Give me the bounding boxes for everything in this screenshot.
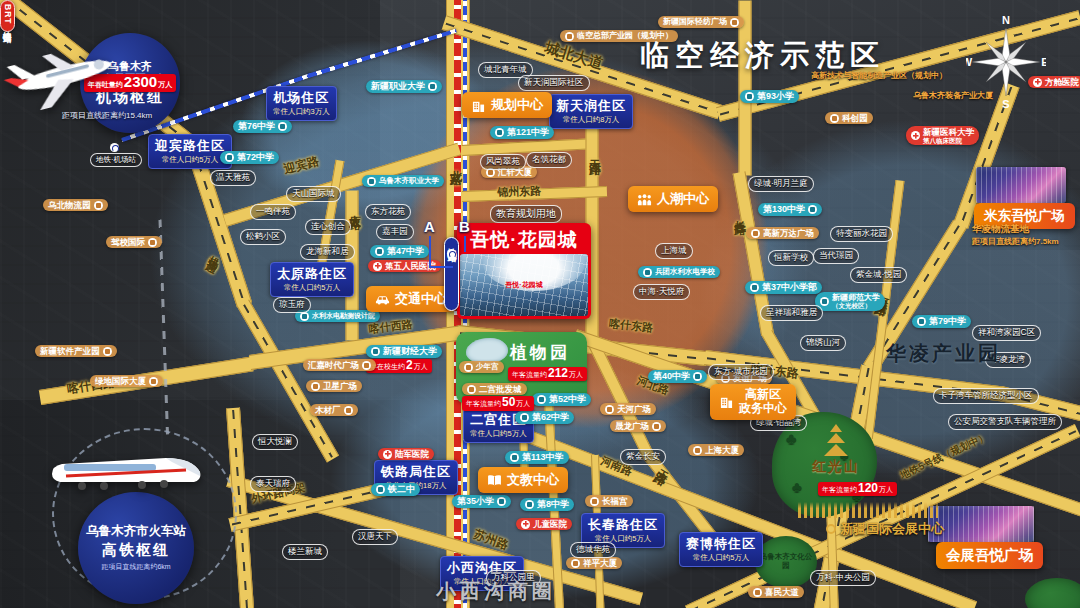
poi-badge-wrap: 晟龙广场 (610, 420, 666, 432)
poi-badge-wrap: 木材厂 (310, 404, 358, 416)
estate-label: 嘉丰园 (376, 224, 414, 240)
school-badge-label: 第130中学 (763, 205, 805, 215)
school-badge-wrap: 水利水电勘测设计院 (295, 310, 380, 322)
school-badge-label: 第8中学 (537, 500, 569, 510)
pdot-icon (830, 114, 839, 123)
poi-badge-wrap: 新疆软件产业园 (35, 345, 117, 357)
center-label: 人潮中心 (628, 186, 718, 212)
railway-hub: 乌鲁木齐市火车站 高铁枢纽 距项目直线距离约6km (78, 492, 194, 604)
school-badge-label: 第93小学 (757, 92, 794, 102)
estate-label: 楼兰新城 (282, 544, 328, 560)
poi-badge-wrap: 喜民大道 (748, 586, 804, 598)
car-icon (375, 293, 390, 306)
poi-badge: 汇嘉时代广场 (303, 359, 376, 371)
estate-label: 温天雅苑 (210, 170, 256, 186)
poi-badge: 绿地国际大厦 (90, 375, 163, 387)
school-badge-wrap: 第40中学 (648, 370, 707, 383)
school-badge: 新疆职业大学 (366, 80, 442, 93)
district-population: 常住人口约8万人 (556, 115, 626, 125)
road-name-label: 锦州东路 (497, 183, 541, 200)
school-badge-wrap: 第47中学 (370, 245, 429, 258)
estate-label: 上海城 (655, 243, 693, 259)
expo-icon (826, 524, 836, 534)
airport-distance: 距项目直线距离约15.4km (62, 110, 152, 121)
sdot-icon (643, 268, 652, 277)
school-badge-text: 第8中学 (537, 500, 569, 510)
project-title: 吾悦·花园城 (457, 223, 591, 253)
district-name: 铁路局住区 (381, 463, 451, 481)
school-badge-text: 新疆职业大学 (371, 82, 425, 92)
poi-badge-label: 乌北物流园 (48, 201, 91, 210)
poi-badge-label: 新疆软件产业园 (40, 347, 100, 356)
poi-badge: 高新万达广场 (746, 227, 819, 239)
pdot-icon (148, 238, 157, 247)
train-icon (46, 436, 206, 496)
school-badge-text: 第52中学 (549, 395, 586, 405)
district-label: 赛博特住区常住人口约5万人 (679, 532, 763, 567)
zone-label-hualing: 华凌产业园 (886, 340, 1001, 367)
metro-station-botanical: 地铁植物园站 (444, 237, 459, 311)
poi-badge-label: 绿地国际大厦 (95, 377, 146, 386)
school-badge-text: 兵团水利水电学校 (655, 268, 715, 276)
school-badge-text: 铁二中 (388, 485, 415, 495)
estate-label: 卡子湾车管所经济型小区 (933, 388, 1039, 404)
sdot-icon (375, 247, 384, 256)
estate-label: 绿城·明月兰庭 (748, 176, 814, 192)
estate-label: 中海·天悦府 (633, 284, 690, 300)
hospital-badge-text: 儿童医院 (533, 520, 567, 529)
poi-badge: 驾校国际 (106, 236, 162, 248)
school-badge-label: 第121中学 (507, 128, 549, 138)
sdot-icon (820, 297, 829, 306)
road-name-label: 喀什东路 (608, 316, 653, 336)
poi-badge-text: 木材厂 (315, 406, 341, 415)
badge-text: 50 (502, 396, 515, 409)
district-name: 太原路住区 (277, 265, 347, 283)
airport-metro-icon (110, 143, 119, 152)
pdot-icon (94, 201, 103, 210)
project-logo-text: 吾悦·花园城 (460, 280, 588, 290)
school-badge-label: 第35小学 (457, 497, 494, 507)
school-badge: 新疆财经大学 (366, 345, 442, 358)
badge-text: 2 (406, 359, 413, 372)
school-badge: 第121中学 (490, 126, 554, 139)
school-badge-label: 第52中学 (549, 395, 586, 405)
estate-label: 天山国际城 (286, 186, 341, 202)
school-badge-wrap: 第130中学 (758, 203, 822, 216)
airport-metro-label: 地铁·机场站 (90, 153, 142, 167)
estate-label: 特变丽水花园 (830, 226, 893, 242)
district-name: 新天润住区 (556, 97, 626, 115)
poi-badge-label: 科创园 (842, 114, 868, 123)
estate-label: 龙海新和居 (300, 244, 355, 260)
poi-badge-text: 汇嘉时代广场 (308, 361, 359, 370)
school-badge-label: 新疆师范大学 (832, 294, 880, 303)
school-badge-text: 第130中学 (763, 205, 805, 215)
center-text: 交通中心 (395, 290, 447, 308)
school-badge-text: 第121中学 (507, 128, 549, 138)
road-name-label: 迎宾路 (282, 153, 321, 179)
estate-label: 德城华苑 (570, 542, 616, 558)
poi-badge-text: 乌北物流园 (48, 201, 91, 210)
school-badge: 第130中学 (758, 203, 822, 216)
school-badge: 第62中学 (515, 411, 574, 424)
poi-badge-label: 上海大厦 (705, 446, 739, 455)
school-badge-wrap: 第62中学 (515, 411, 574, 424)
compass-n: N (1002, 14, 1010, 26)
poi-badge-text: 卫星广场 (323, 382, 357, 391)
project-rendering: 吾悦·花园城 (460, 254, 588, 316)
center-line: 高新区 (739, 388, 787, 402)
school-badge-wrap: 新疆师范大学（文光校区） (815, 292, 885, 311)
estate-label: 恒大悦澜 (252, 434, 298, 450)
district-label: 机场住区常住人口约3万人 (266, 86, 337, 121)
poi-badge-text: 天河广场 (617, 405, 651, 414)
boundary-dashed-line (159, 219, 170, 434)
school-badge-wrap: 第8中学 (520, 498, 574, 511)
sdot-icon (520, 413, 529, 422)
hdot-icon (911, 131, 920, 140)
poi-badge-text: 上海大厦 (705, 446, 739, 455)
stat-badge: 年客流量约50万人 (462, 396, 534, 410)
pdot-icon (751, 229, 760, 238)
expo-mall-label: 会展吾悦广场 (936, 542, 1043, 569)
project-box: 吾悦·花园城 吾悦·花园城 (457, 223, 591, 319)
compass-s: S (1002, 98, 1009, 110)
school-badge: 第35小学 (452, 495, 511, 508)
school-badge: 兵团水利水电学校 (638, 266, 720, 278)
poi-badge-wrap: 二宫批发城年客流量约50万人 (462, 383, 534, 411)
district-population: 常住人口约3万人 (273, 107, 330, 117)
district-label: 新天润住区常住人口约8万人 (549, 94, 633, 129)
road-segment (462, 138, 592, 156)
estate-label: 连心创合 (305, 219, 351, 235)
school-badge-text: 第113中学 (522, 453, 564, 463)
compass-rose: N S W E (966, 10, 1046, 112)
hospital-badge-wrap: 儿童医院 (516, 518, 572, 530)
school-badge-text: 第76中学 (238, 122, 275, 132)
pdot-icon (103, 347, 112, 356)
tree-icon (786, 430, 797, 448)
building-icon (471, 99, 486, 112)
poi-badge-text: 绿地国际大厦 (95, 377, 146, 386)
estate-label: 公安局交警支队车辆管理所 (948, 414, 1062, 430)
sdot-icon (537, 395, 546, 404)
school-badge: 第52中学 (532, 393, 591, 406)
school-badge-wrap: 兵团水利水电学校 (638, 266, 720, 278)
school-badge-wrap: 第52中学 (532, 393, 591, 406)
hospital-badge-text: 陆军医院 (395, 450, 429, 459)
estate-label: 新天润国际社区 (518, 75, 590, 91)
school-badge-label: 乌鲁木齐职业大学 (379, 177, 439, 185)
pdot-icon (605, 405, 614, 414)
sdot-icon (278, 122, 287, 131)
estate-label: 恒新学校 (768, 250, 814, 266)
school-badge: 第40中学 (648, 370, 707, 383)
metro-roundel-icon (447, 249, 456, 258)
sdot-icon (367, 177, 376, 186)
school-badge: 第47中学 (370, 245, 429, 258)
poi-badge: 喜民大道 (748, 586, 804, 598)
estate-label: 名筑花都 (526, 152, 572, 168)
exit-b-line (464, 236, 466, 252)
estate-label: 紫金长安 (620, 449, 666, 465)
poi-badge-wrap: 少年宫 (459, 361, 504, 373)
sdot-icon (495, 128, 504, 137)
badge-text: 万人 (516, 399, 530, 409)
school-badge-wrap: 第72中学 (220, 151, 279, 164)
sdot-icon (693, 372, 702, 381)
poi-badge-text: 驾校国际 (111, 238, 145, 247)
estate-label: 一鸣伴苑 (250, 204, 296, 220)
expo-center-label: 新疆国际会展中心 (826, 520, 944, 538)
district-label: 太原路住区常住人口约5万人 (270, 262, 354, 297)
badge-text: 万人 (414, 362, 428, 372)
hospital-badge-text: 新疆医科大学第八临床医院 (923, 128, 974, 144)
school-badge: 乌鲁木齐职业大学 (362, 175, 444, 187)
poi-badge: 卫星广场 (306, 380, 362, 392)
estate-label: 风尚翠苑 (480, 154, 526, 170)
sdot-icon (371, 347, 380, 356)
poi-badge-text: 晟龙广场 (615, 422, 649, 431)
hospital-badge-wrap: 陆军医院 (378, 448, 434, 460)
hdot-icon (521, 520, 530, 529)
poi-badge-text: 高新万达广场 (763, 229, 814, 238)
school-badge-text: 新疆财经大学 (383, 347, 437, 357)
district-population: 常住人口约5万人 (277, 283, 347, 293)
poi-badge-label: 少年宫 (476, 363, 499, 371)
school-badge-sub: （文光校区） (832, 302, 880, 309)
school-badge: 水利水电勘测设计院 (295, 310, 380, 322)
hospital-badge-label: 新疆医科大学 (923, 128, 974, 137)
school-badge-wrap: 第35小学 (452, 495, 511, 508)
poi-badge-label: 天河广场 (617, 405, 651, 414)
road-name-label: 天津路 (586, 150, 603, 156)
school-badge-text: 第40中学 (653, 372, 690, 382)
poi-badge-label: 二宫批发城 (479, 385, 522, 394)
school-badge: 第72中学 (220, 151, 279, 164)
road-name-label: 北京路 (447, 160, 464, 166)
school-badge: 第93小学 (740, 90, 799, 103)
estate-label: 万科·中央公园 (810, 570, 876, 586)
poi-badge-label: 卫星广场 (323, 382, 357, 391)
pdot-icon (464, 363, 473, 372)
school-badge-text: 乌鲁木齐职业大学 (379, 177, 439, 185)
pdot-icon (652, 422, 661, 431)
school-badge-wrap: 第37中小学部 (745, 281, 822, 294)
school-badge-label: 第72中学 (237, 153, 274, 163)
hospital-badge-label: 方舱医院 (1045, 78, 1079, 87)
district-name: 迎宾路住区 (155, 137, 225, 155)
pdot-icon (149, 377, 158, 386)
school-badge-text: 第35小学 (457, 497, 494, 507)
center-text: 人潮中心 (657, 190, 709, 208)
school-badge-label: 铁二中 (388, 485, 415, 495)
school-badge-wrap: 新疆职业大学 (366, 80, 442, 93)
school-badge: 第79中学 (912, 315, 971, 328)
hospital-badge-wrap: 新疆医科大学第八临床医院 (906, 126, 979, 145)
badge-text: 年客流量约 (466, 399, 501, 409)
poi-badge-wrap: 祥平大厦 (566, 557, 622, 569)
pdot-icon (590, 497, 599, 506)
poi-badge-wrap: 长福宫 (585, 495, 633, 507)
pdot-icon (571, 559, 580, 568)
school-badge-text: 第37中小学部 (762, 283, 817, 293)
people-icon (637, 193, 652, 206)
school-badge-label: 水利水电勘测设计院 (312, 312, 375, 320)
zone-label-airspace: 临空经济示范区 (640, 36, 885, 76)
poi-badge-label: 驾校国际 (111, 238, 145, 247)
school-badge-wrap: 乌鲁木齐职业大学 (362, 175, 444, 187)
sdot-icon (745, 92, 754, 101)
district-name: 赛博特住区 (686, 535, 756, 553)
pdot-icon (311, 382, 320, 391)
school-badge-label: 第37中小学部 (762, 283, 817, 293)
center-text: 文教中心 (507, 471, 559, 489)
exit-a-line (429, 266, 453, 268)
hospital-badge: 儿童医院 (516, 518, 572, 530)
school-badge-text: 第47中学 (387, 247, 424, 257)
poi-badge: 科创园 (825, 112, 873, 124)
poi-badge-label: 长福宫 (602, 497, 628, 506)
poi-badge-text: 科创园 (842, 114, 868, 123)
estate-label: 东方·城市花园 (708, 364, 774, 380)
school-badge-text: 水利水电勘测设计院 (312, 312, 375, 320)
hospital-badge-sub: 第八临床医院 (923, 137, 974, 144)
poi-badge: 晟龙广场 (610, 420, 666, 432)
metro-exit-a: A (424, 218, 435, 235)
poi-badge-wrap: 汇嘉时代广场 (303, 359, 376, 371)
poi-badge: 少年宫 (459, 361, 504, 373)
land-use-label: 教育规划用地 (490, 205, 562, 223)
district-name: 机场住区 (273, 89, 330, 107)
pdot-icon (344, 406, 353, 415)
poi-badge: 二宫批发城 (462, 383, 527, 395)
school-badge-label: 第79中学 (929, 317, 966, 327)
sdot-icon (376, 485, 385, 494)
center-label: 高新区政务中心 (710, 384, 796, 420)
estate-label: 祥和湾家园C区 (972, 325, 1041, 341)
poi-badge-label: 新疆国际轻纺广场 (663, 18, 727, 27)
poi-badge-text: 祥平大厦 (583, 559, 617, 568)
poi-badge-wrap: 新疆国际轻纺广场 (658, 16, 744, 28)
compass-w: W (966, 56, 973, 68)
poi-badge-text: 少年宫 (476, 363, 499, 371)
district-population: 常住人口约5万人 (155, 155, 225, 165)
center-label: 规划中心 (462, 92, 552, 118)
road-name-label: 太原路 (346, 205, 363, 211)
hospital-badge: 新疆医科大学第八临床医院 (906, 126, 979, 145)
poi-badge-label: 祥平大厦 (583, 559, 617, 568)
pdot-icon (730, 18, 739, 27)
school-badge-label: 第40中学 (653, 372, 690, 382)
poi-badge-wrap: 科创园 (825, 112, 873, 124)
center-line: 政务中心 (739, 402, 787, 416)
poi-badge: 木材厂 (310, 404, 358, 416)
sdot-icon (510, 453, 519, 462)
estate-label: 汉唐天下 (352, 529, 398, 545)
hdot-icon (373, 262, 382, 271)
school-badge-wrap: 第76中学 (233, 120, 292, 133)
district-name: 长春路住区 (588, 516, 658, 534)
school-badge-label: 第62中学 (532, 413, 569, 423)
metro-line-dashed (307, 29, 456, 78)
poi-badge-text: 喜民大道 (765, 588, 799, 597)
expo-center-skyline (798, 502, 938, 518)
poi-badge: 新疆国际轻纺广场 (658, 16, 744, 28)
poi-badge-wrap: 绿地国际大厦 (90, 375, 163, 387)
visitor-badge: 年客流量约212万人 (508, 367, 587, 381)
center-label: 文教中心 (478, 467, 568, 493)
poi-badge-wrap: 天河广场 (600, 403, 656, 415)
school-badge-label: 第76中学 (238, 122, 275, 132)
school-badge-wrap: 第113中学 (505, 451, 569, 464)
poi-badge: 祥平大厦 (566, 557, 622, 569)
metro-exit-b: B (459, 218, 470, 235)
estate-label: 锦绣山河 (800, 335, 846, 351)
poi-badge-text: 新疆国际轻纺广场 (663, 18, 727, 27)
school-badge-text: 新疆师范大学（文光校区） (832, 294, 880, 310)
school-badge: 第8中学 (520, 498, 574, 511)
school-badge: 第76中学 (233, 120, 292, 133)
sdot-icon (225, 153, 234, 162)
center-text: 规划中心 (491, 96, 543, 114)
book-icon (487, 474, 502, 487)
hospital-badge-label: 儿童医院 (533, 520, 567, 529)
poi-badge-wrap: 乌北物流园 (43, 199, 108, 211)
poi-badge: 天河广场 (600, 403, 656, 415)
poi-badge-text: 新疆软件产业园 (40, 347, 100, 356)
park-shape (1025, 578, 1080, 608)
poi-badge: 长福宫 (585, 495, 633, 507)
pdot-icon (467, 385, 476, 394)
school-badge: 第113中学 (505, 451, 569, 464)
sdot-icon (808, 205, 817, 214)
school-badge: 新疆师范大学（文光校区） (815, 292, 885, 311)
sdot-icon (750, 283, 759, 292)
district-population: 常住人口约5万人 (470, 429, 527, 439)
school-badge-label: 新疆财经大学 (383, 347, 437, 357)
pdot-icon (565, 32, 574, 41)
hdot-icon (383, 450, 392, 459)
hospital-badge: 陆军医院 (378, 448, 434, 460)
pdot-icon (753, 588, 762, 597)
road-name-label: 长春路 (731, 210, 748, 216)
sdot-icon (428, 82, 437, 91)
school-badge-label: 第113中学 (522, 453, 564, 463)
school-badge-label: 兵团水利水电学校 (655, 268, 715, 276)
poi-badge-wrap: 卫星广场 (306, 380, 362, 392)
poi-badge-text: 二宫批发城 (479, 385, 522, 394)
poi-badge-label: 晟龙广场 (615, 422, 649, 431)
school-badge-wrap: 铁二中 (371, 483, 420, 496)
hualing-logistics-label: 华凌物流基地 距项目直线距离约7.5km (972, 223, 1059, 247)
hospital-badge-text: 方舱医院 (1045, 78, 1079, 87)
mall-photo (976, 167, 1066, 203)
school-badge: 第37中小学部 (745, 281, 822, 294)
school-badge-text: 第93小学 (757, 92, 794, 102)
school-badge-wrap: 第79中学 (912, 315, 971, 328)
poi-badge-wrap: 高新万达广场 (746, 227, 819, 239)
sdot-icon (525, 500, 534, 509)
estate-label: 琼玉府 (273, 297, 311, 313)
compass-e: E (1041, 56, 1046, 68)
school-badge-wrap: 第93小学 (740, 90, 799, 103)
park-name: 植物园 (510, 341, 570, 364)
school-badge-wrap: 第121中学 (490, 126, 554, 139)
city-map: 北京路迎宾路机场高速太原路城北大道锦州东路天津路天津路喀什西路喀什西路喀什东路喀… (0, 0, 1080, 608)
poi-badge: 乌北物流园 (43, 199, 108, 211)
